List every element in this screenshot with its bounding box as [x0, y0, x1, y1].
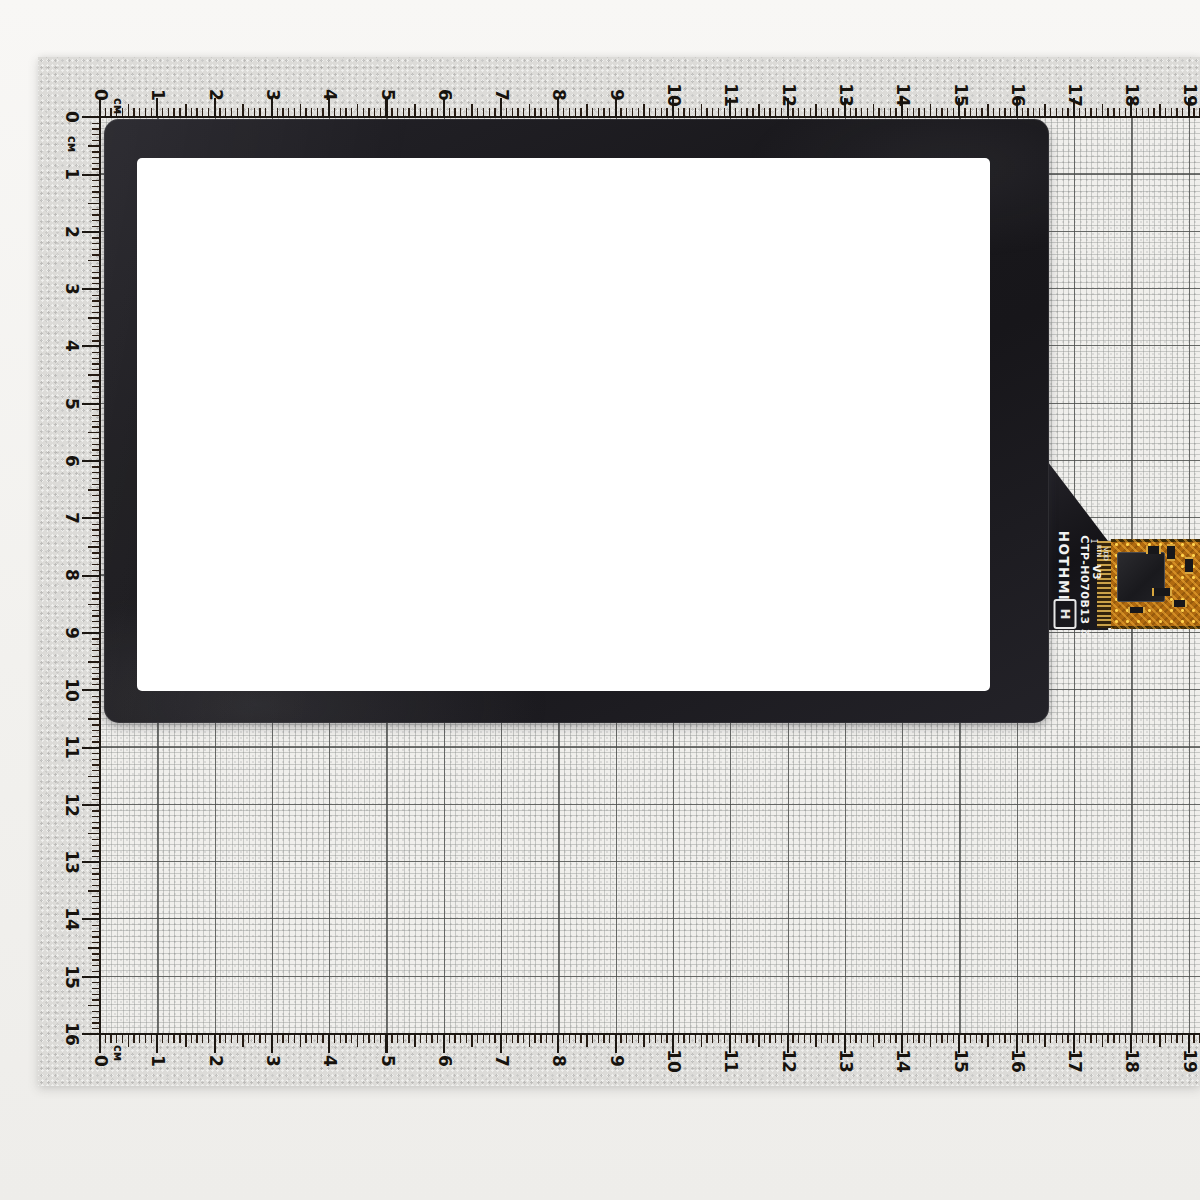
ruler-number: 9	[63, 627, 80, 639]
ruler-number: 15	[951, 1049, 968, 1073]
ruler-number: 4	[63, 340, 80, 352]
z-mark-text: Z	[1080, 629, 1088, 634]
hothmi-logo-icon: H	[1054, 599, 1077, 629]
ruler-number: 10	[63, 678, 80, 702]
touch-panel-active-area	[137, 158, 990, 691]
touch-panel-bezel	[104, 119, 1049, 723]
ruler-number: 17	[1066, 83, 1083, 107]
ruler-number: 19	[1180, 83, 1197, 107]
ruler-number: 3	[63, 283, 80, 295]
flex-cable	[1111, 539, 1200, 629]
ruler-number: 6	[435, 1055, 452, 1067]
ruler-unit-label: см	[65, 136, 77, 152]
model-number-text: CTP-H070B13	[1079, 535, 1090, 624]
ruler-number: 8	[550, 89, 567, 101]
ruler-number: 0	[63, 111, 80, 123]
ruler-number: 13	[836, 83, 853, 107]
ruler-number: 12	[779, 83, 796, 107]
top-ruler-line	[99, 116, 1200, 118]
ruler-number: 8	[63, 569, 80, 581]
ruler-number: 3	[263, 89, 280, 101]
ruler-number: 12	[779, 1049, 796, 1073]
ruler-number: 2	[63, 226, 80, 238]
ruler-number: 14	[894, 83, 911, 107]
ruler-unit-label: см	[111, 98, 123, 114]
ruler-number: 1	[63, 168, 80, 180]
ruler-number: 7	[493, 89, 510, 101]
ruler-number: 7	[63, 512, 80, 524]
ruler-number: 16	[63, 1022, 80, 1046]
ruler-number: 16	[1008, 1049, 1025, 1073]
ruler-number: 8	[550, 1055, 567, 1067]
ruler-number: 9	[607, 89, 624, 101]
ruler-number: 14	[63, 907, 80, 931]
fpc-component	[1146, 546, 1161, 554]
ruler-number: 19	[1180, 1049, 1197, 1073]
ruler-number: 0	[92, 89, 109, 101]
ruler-number: 9	[607, 1055, 624, 1067]
ruler-number: 3	[263, 1055, 280, 1067]
rtn-pin-label: RTN	[1096, 545, 1102, 557]
product-photo-touch-panel: { "rulers": { "unit": "см", "top": ["0",…	[0, 0, 1200, 1200]
pin1-label: 1	[1089, 538, 1097, 543]
ruler-number: 15	[63, 965, 80, 989]
ruler-number: 15	[951, 83, 968, 107]
ruler-number: 1	[149, 1055, 166, 1067]
fpc-component	[1167, 544, 1175, 561]
ruler-number: 10	[665, 1049, 682, 1073]
ruler-number: 5	[378, 89, 395, 101]
fpc-component	[1185, 557, 1193, 574]
ruler-number: 4	[321, 89, 338, 101]
ruler-number: 14	[894, 1049, 911, 1073]
ruler-number: 1	[149, 89, 166, 101]
ruler-number: 4	[321, 1055, 338, 1067]
ruler-number: 5	[378, 1055, 395, 1067]
ruler-number: 6	[435, 89, 452, 101]
ruler-unit-label: см	[111, 1045, 123, 1061]
ruler-number: 12	[63, 793, 80, 817]
ruler-number: 2	[206, 89, 223, 101]
version-text: V3	[1091, 565, 1101, 580]
ruler-number: 17	[1066, 1049, 1083, 1073]
logo-letter: H	[1058, 609, 1073, 620]
ruler-number: 6	[63, 455, 80, 467]
left-ruler-ticks	[82, 116, 100, 1035]
vdd-pin-label: VDD	[1103, 547, 1109, 560]
ruler-number: 18	[1123, 83, 1140, 107]
ruler-number: 7	[493, 1055, 510, 1067]
ruler-number: 18	[1123, 1049, 1140, 1073]
fpc-component	[1128, 607, 1145, 613]
ruler-number: 11	[63, 735, 80, 759]
ruler-number: 16	[1008, 83, 1025, 107]
ruler-number: 13	[63, 850, 80, 874]
ruler-number: 10	[665, 83, 682, 107]
ruler-number: 11	[722, 1049, 739, 1073]
ruler-number: 5	[63, 398, 80, 410]
ruler-number: 2	[206, 1055, 223, 1067]
ruler-number: 11	[722, 83, 739, 107]
ruler-number: 0	[92, 1055, 109, 1067]
bottom-ruler-ticks	[99, 1035, 1200, 1053]
ruler-number: 13	[836, 1049, 853, 1073]
fpc-component	[1172, 600, 1187, 607]
brand-text: HOTHMI	[1056, 531, 1070, 602]
fpc-component	[1152, 588, 1172, 596]
